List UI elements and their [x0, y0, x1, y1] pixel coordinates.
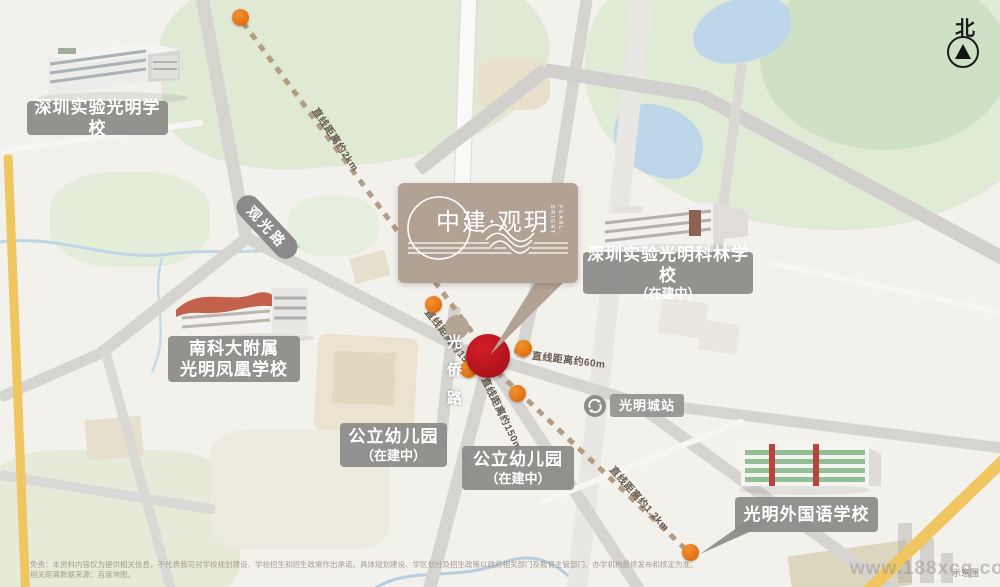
project-logo: 中建·观玥 BRIGHT PEARL [398, 183, 578, 283]
label-line: 公立幼儿园 [462, 449, 574, 470]
label-school-shiyan: 深圳实验光明学校 [27, 101, 168, 135]
rail-transit-icon [584, 395, 606, 417]
disclaimer-line-1: 免责：本资料内容仅为提供相关信息，不代表我司对学校规划建设、学校招生和招生政策作… [30, 560, 750, 570]
label-school-kelin: 深圳实验光明科林学校 （在建中） [583, 252, 753, 294]
location-map: 中建·观玥 BRIGHT PEARL 直线距离约2km 直线距离约60m 直线距… [0, 0, 1000, 587]
road-label-guangqiao: 光侨路 [443, 334, 464, 434]
poi-dot-waiguoyu [682, 544, 699, 561]
poi-dot-shiyan [232, 9, 249, 26]
school-photo-waiguoyu [733, 426, 883, 496]
label-school-waiguoyu: 光明外国语学校 [735, 497, 878, 532]
map-block [332, 351, 396, 405]
label-line: 深圳实验光明科林学校 [583, 244, 753, 287]
compass-icon [947, 36, 979, 68]
project-title: 中建·观玥 [436, 208, 550, 236]
label-station: 光明城站 [610, 394, 684, 417]
school-photo-shiyan [28, 20, 198, 105]
label-kindergarten-1: 公立幼儿园 （在建中） [340, 423, 447, 467]
school-photo-fenghuang [172, 274, 322, 344]
poi-dot-nw [425, 296, 442, 313]
north-arrow-icon [955, 44, 971, 59]
label-line: 南科大附属 [168, 338, 300, 359]
disclaimer-text: 免责：本资料内容仅为提供相关信息，不代表我司对学校规划建设、学校招生和招生政策作… [30, 560, 750, 580]
project-subtitle-1: BRIGHT [549, 205, 555, 235]
poi-dot-east [515, 340, 532, 357]
label-line: （在建中） [583, 286, 753, 302]
label-line: 光明凤凰学校 [168, 359, 300, 380]
poi-dot-south [509, 385, 526, 402]
label-school-fenghuang: 南科大附属 光明凤凰学校 [168, 336, 300, 382]
label-line: （在建中） [462, 471, 574, 487]
map-block [698, 320, 740, 355]
label-line: 公立幼儿园 [340, 426, 447, 447]
disclaimer-line-2: 相关距离数据来源：百度地图。 [30, 570, 750, 580]
diagram-note: 示意图 [952, 566, 979, 579]
project-subtitle-2: PEARL [557, 205, 563, 231]
label-kindergarten-2: 公立幼儿园 （在建中） [462, 446, 574, 490]
label-line: （在建中） [340, 448, 447, 464]
